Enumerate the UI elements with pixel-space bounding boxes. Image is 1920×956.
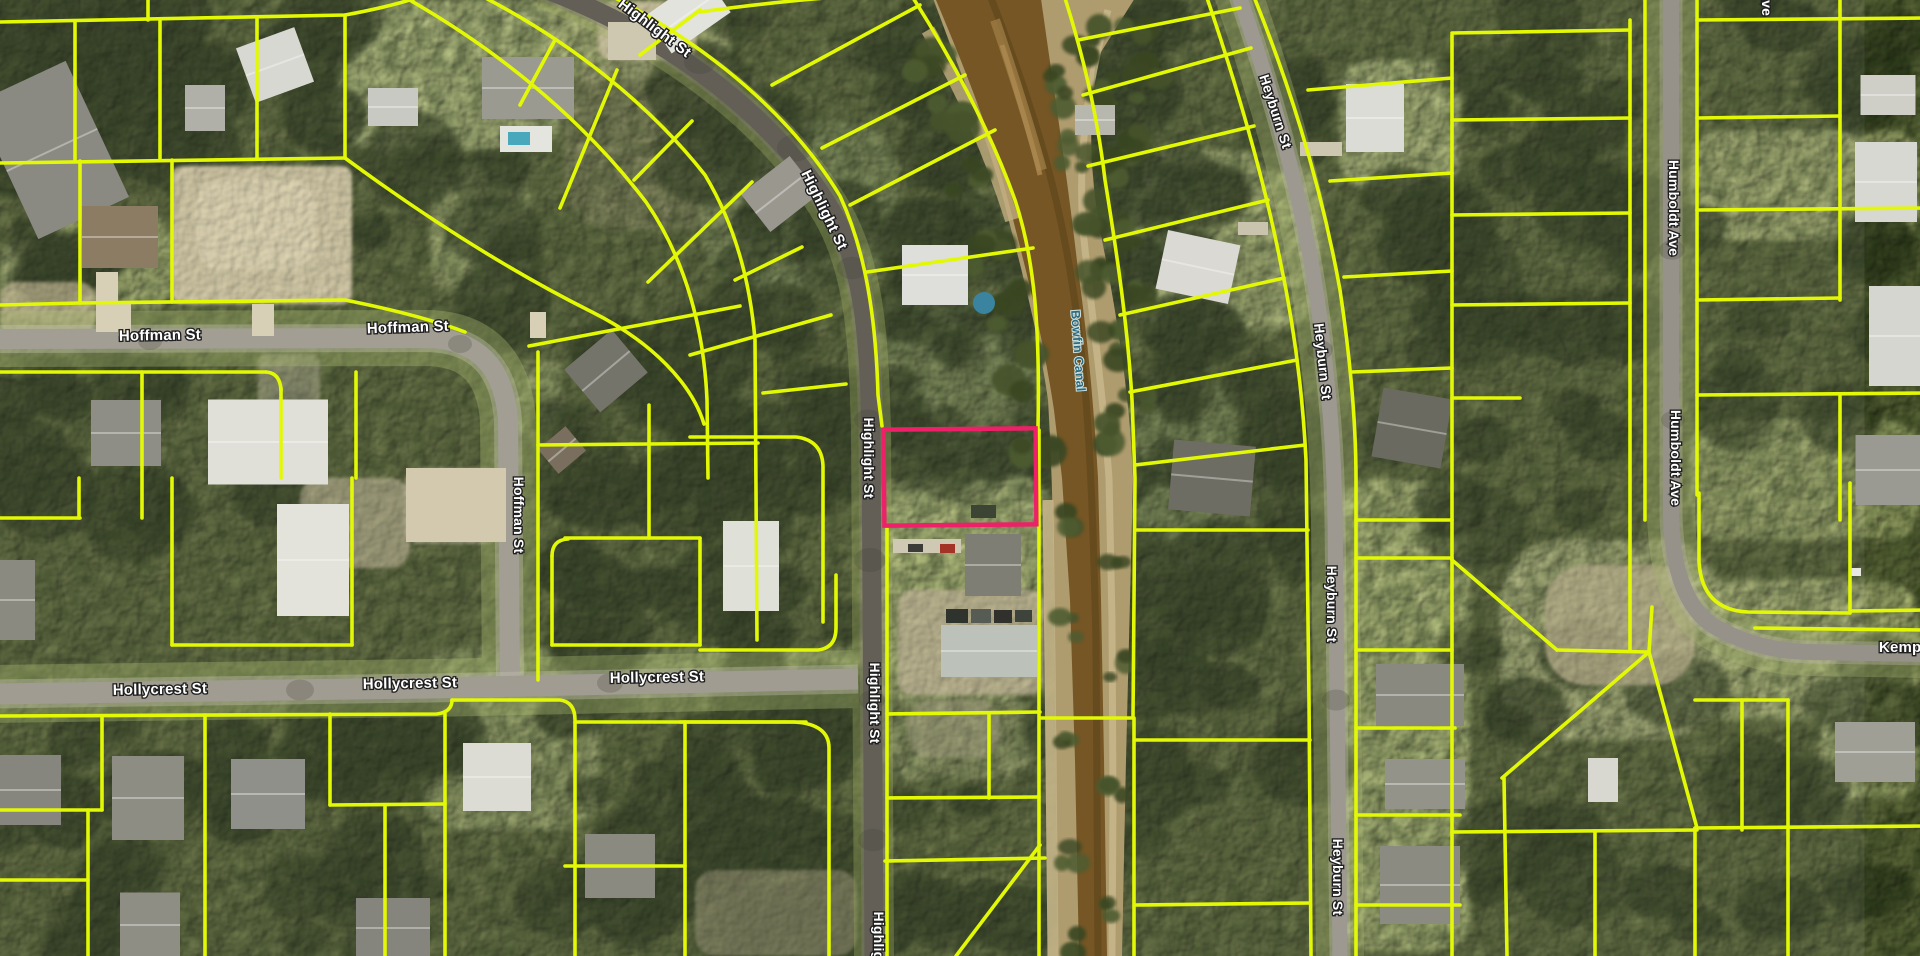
svg-text:Hollycrest St: Hollycrest St: [363, 674, 458, 693]
svg-text:Hoffman St: Hoffman St: [119, 326, 201, 344]
svg-text:Humboldt Ave: Humboldt Ave: [1759, 0, 1775, 16]
svg-text:Hollycrest St: Hollycrest St: [113, 680, 208, 699]
svg-text:Highlight St: Highlight St: [867, 663, 883, 744]
svg-text:Hoffman St: Hoffman St: [511, 477, 527, 554]
svg-text:Humboldt Ave: Humboldt Ave: [1666, 160, 1682, 256]
svg-text:Highlight St: Highlight St: [871, 912, 887, 956]
svg-text:Humboldt Ave: Humboldt Ave: [1668, 410, 1684, 506]
svg-text:Hollycrest St: Hollycrest St: [610, 668, 705, 687]
svg-text:Hoffman St: Hoffman St: [367, 318, 450, 338]
svg-text:Highlight St: Highlight St: [861, 418, 877, 499]
svg-text:Heyburn St: Heyburn St: [1324, 566, 1340, 643]
svg-text:Heyburn St: Heyburn St: [1330, 839, 1346, 916]
svg-text:Kempton St: Kempton St: [1879, 639, 1920, 656]
